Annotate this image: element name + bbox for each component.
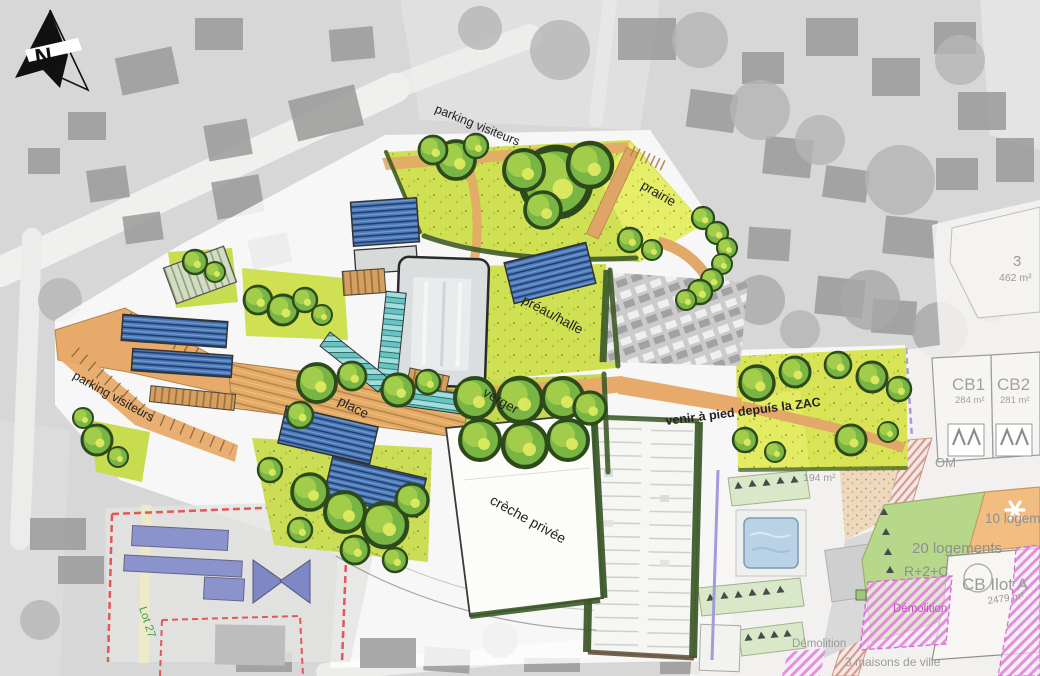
- tree: [642, 240, 662, 260]
- tree: [878, 422, 898, 442]
- tree: [73, 408, 93, 428]
- label-parcel-3-number: 3: [1013, 253, 1021, 270]
- tree: [292, 474, 328, 510]
- label-20-logements: 20 logements: [912, 540, 1002, 557]
- tree: [419, 136, 447, 164]
- tree: [574, 392, 606, 424]
- tree: [676, 290, 696, 310]
- tree: [525, 192, 561, 228]
- building-solar-roof: [351, 198, 420, 246]
- site-plan-svg: parking visiteurs prairie préau/halle pl…: [0, 0, 1040, 676]
- tree: [287, 402, 313, 428]
- tree: [504, 150, 544, 190]
- label-cb1-area: 284 m²: [955, 395, 985, 406]
- label-maisons-de-ville: 3 maisons de ville: [845, 655, 941, 669]
- label-parcel-3-area: 462 m²: [999, 272, 1032, 284]
- building-wood-strip: [342, 269, 386, 296]
- label-demolition-1: Démolition: [893, 603, 947, 615]
- tree: [780, 357, 810, 387]
- tree: [857, 362, 887, 392]
- tree: [325, 492, 365, 532]
- tree: [740, 366, 774, 400]
- tree: [416, 370, 440, 394]
- tree: [836, 425, 866, 455]
- parcel-cb1-cb2: [932, 352, 1040, 462]
- tree: [618, 228, 642, 252]
- tree: [298, 364, 336, 402]
- tree: [288, 518, 312, 542]
- tree: [887, 377, 911, 401]
- pool: [736, 510, 806, 576]
- building-hall: [395, 256, 489, 387]
- tree: [183, 250, 207, 274]
- label-r2c: R+2+C: [904, 563, 948, 579]
- tree: [338, 362, 366, 390]
- tree: [765, 442, 785, 462]
- tree: [108, 447, 128, 467]
- tree: [82, 425, 112, 455]
- tree: [396, 484, 428, 516]
- label-10-logements: 10 logements: [985, 511, 1040, 526]
- demolition-hatch-2: [782, 648, 826, 676]
- small-green-marker: [856, 590, 866, 600]
- label-cb1: CB1: [952, 375, 985, 394]
- tree: [503, 423, 547, 467]
- tree: [383, 548, 407, 572]
- existing-school-building: [203, 577, 244, 601]
- label-194: 194 m²: [803, 472, 836, 484]
- tree: [548, 420, 588, 460]
- parking-north-east: [603, 270, 748, 366]
- label-om: OM: [935, 455, 956, 470]
- tree: [312, 305, 332, 325]
- site-plan-page: parking visiteurs prairie préau/halle pl…: [0, 0, 1040, 676]
- tree: [568, 143, 612, 187]
- label-cb2: CB2: [997, 375, 1030, 394]
- tree: [341, 536, 369, 564]
- tree: [205, 262, 225, 282]
- tree: [258, 458, 282, 482]
- tree: [460, 420, 500, 460]
- label-demolition-2: Démolition: [792, 638, 846, 650]
- small-parcel: [699, 624, 741, 671]
- tree: [733, 428, 757, 452]
- tree: [464, 134, 488, 158]
- tree: [382, 374, 414, 406]
- tree: [825, 352, 851, 378]
- label-cb2-area: 281 m²: [1000, 395, 1030, 406]
